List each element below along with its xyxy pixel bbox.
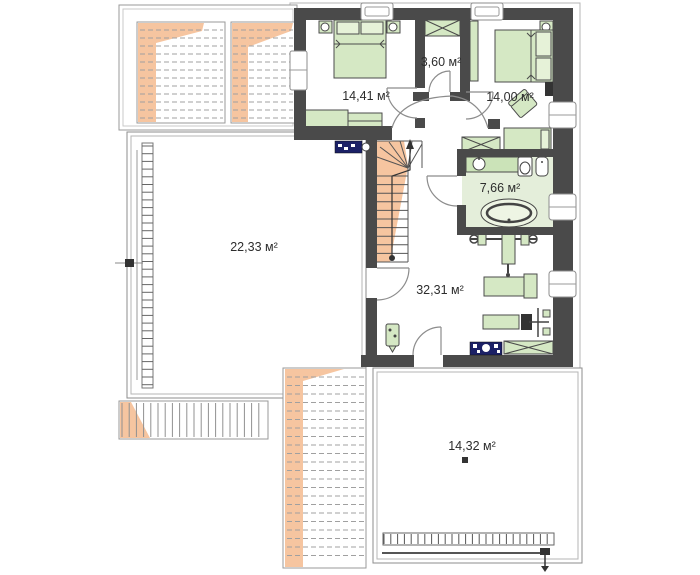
room-label-hall: 32,31 м² bbox=[416, 283, 464, 297]
room-label-bedroom-right: 14,00 м² bbox=[486, 90, 534, 104]
double-door-arc-icon bbox=[392, 96, 488, 128]
roof-top-left bbox=[119, 5, 297, 130]
window-icon bbox=[290, 51, 307, 90]
room-label-bathroom: 7,66 м² bbox=[480, 181, 521, 195]
floor-plan-page: 14,41 м² 3,60 м² 14,00 м² 7,66 м² 22,33 … bbox=[0, 0, 700, 575]
staircase bbox=[377, 139, 422, 262]
room-terrace-bottom bbox=[373, 368, 582, 572]
bathtub-icon bbox=[481, 199, 537, 227]
double-bed-icon bbox=[495, 30, 553, 82]
door-arc-icon bbox=[427, 176, 457, 206]
section-marker-icon bbox=[125, 259, 134, 267]
exercise-machine-icon bbox=[483, 308, 550, 337]
level-marker-icon bbox=[462, 457, 468, 463]
barbell-rack-icon bbox=[470, 233, 537, 277]
hall-furniture bbox=[386, 233, 553, 354]
media-unit-icon bbox=[545, 82, 553, 96]
roof-bottom-center bbox=[283, 368, 366, 568]
double-bed-icon bbox=[334, 20, 386, 78]
room-terrace-left bbox=[115, 132, 366, 398]
door-arc-icon bbox=[429, 71, 450, 92]
bidet-icon bbox=[536, 157, 548, 176]
floor-plan-canvas: 14,41 м² 3,60 м² 14,00 м² 7,66 м² 22,33 … bbox=[0, 0, 700, 575]
window-icon bbox=[549, 102, 576, 128]
door-arc-icon bbox=[387, 88, 417, 118]
wardrobe-room-furniture bbox=[425, 20, 460, 36]
window-icon bbox=[549, 271, 576, 297]
vacuum-cleaner-icon bbox=[386, 324, 399, 352]
toilet-icon bbox=[518, 157, 532, 176]
window-icon bbox=[549, 194, 576, 220]
room-label-wardrobe-room: 3,60 м² bbox=[421, 55, 462, 69]
room-label-bedroom-left: 14,41 м² bbox=[342, 89, 390, 103]
bedroom-right-furniture bbox=[462, 21, 553, 152]
electrical-panel-icon bbox=[335, 141, 370, 153]
window-icon bbox=[471, 3, 503, 20]
window-icon bbox=[361, 3, 393, 20]
door-arc-icon bbox=[413, 327, 441, 355]
weight-bench-icon bbox=[484, 274, 537, 298]
wardrobe-icon bbox=[504, 341, 553, 354]
daybed-icon bbox=[504, 128, 551, 151]
room-label-terrace-bottom: 14,32 м² bbox=[448, 439, 496, 453]
wardrobe-icon bbox=[425, 20, 460, 36]
room-label-terrace-left: 22,33 м² bbox=[230, 240, 278, 254]
electrical-panel-icon bbox=[470, 342, 502, 355]
railing-icon bbox=[383, 533, 554, 545]
door-arc-icon bbox=[377, 268, 409, 300]
roof-strip-left bbox=[119, 401, 268, 439]
bedroom-left-furniture bbox=[304, 20, 400, 130]
shelf-icon bbox=[470, 21, 478, 81]
